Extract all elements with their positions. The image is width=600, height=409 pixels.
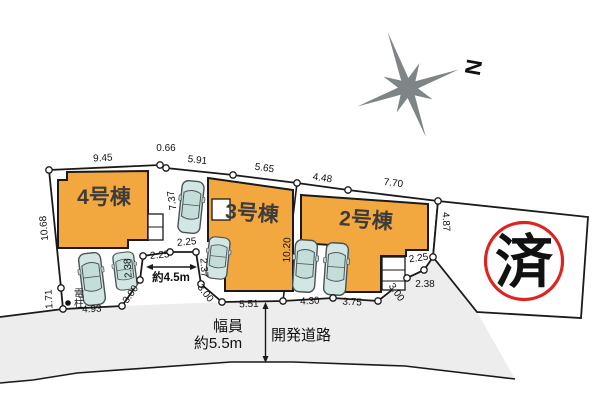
vertex-dot <box>330 295 336 301</box>
dim-430: 4.30 <box>300 295 320 307</box>
vertex-dot <box>163 165 169 171</box>
vertex-dot <box>430 254 436 260</box>
dim-375: 3.75 <box>342 297 362 309</box>
sold-stamp: 済 <box>486 223 563 300</box>
road-width-caption-2: 約5.5m <box>194 335 242 352</box>
site-plan: 4号棟 3号棟 2号棟 電柱 <box>0 0 600 409</box>
road-name-label: 開発道路 <box>271 327 331 344</box>
building-2-label: 2号棟 <box>338 206 394 234</box>
dim-225-top: 2.25 <box>177 236 198 249</box>
vertex-dot <box>58 285 64 291</box>
dim-770: 7.70 <box>383 177 404 190</box>
building-4-shape <box>58 171 148 248</box>
utility-pole-dot <box>65 300 71 306</box>
dim-487: 4.87 <box>439 212 451 233</box>
vertex-dot <box>435 198 441 204</box>
sold-stamp-label: 済 <box>495 230 554 295</box>
compass-north-label: N <box>460 57 487 77</box>
driveway-width-label: 約4.5m <box>152 270 190 284</box>
dim-225-left: 2.25 <box>150 249 171 262</box>
site-plan-canvas: 4号棟 3号棟 2号棟 電柱 <box>0 0 600 409</box>
dim-237: 2.37 <box>197 258 209 279</box>
dim-551: 5.51 <box>239 299 259 311</box>
vertex-dot <box>46 167 52 173</box>
vertex-dot <box>421 267 427 273</box>
dim-493: 4.93 <box>82 303 102 315</box>
vertex-dot <box>119 303 125 309</box>
vertex-dot <box>294 180 300 186</box>
car <box>321 242 351 296</box>
vertex-dot <box>193 249 199 255</box>
car <box>290 239 320 293</box>
vertex-dot <box>375 298 381 304</box>
driveway-width-arrow <box>146 264 197 270</box>
vertex-dot <box>60 306 66 312</box>
dim-591: 5.91 <box>187 154 208 167</box>
vertex-dot <box>219 299 225 305</box>
vertex-dot <box>345 187 351 193</box>
dim-171: 1.71 <box>43 289 55 309</box>
vertex-dot <box>280 298 286 304</box>
vertex-dot <box>140 253 146 259</box>
dim-448: 4.48 <box>312 172 333 186</box>
compass-star <box>357 32 458 137</box>
vertex-dot <box>404 275 410 281</box>
compass-rose: N <box>357 32 487 137</box>
dim-1068: 10.68 <box>38 215 51 241</box>
dim-238-left: 2.38 <box>122 258 134 279</box>
building-4-label: 4号棟 <box>77 185 132 209</box>
dim-066: 0.66 <box>156 143 176 154</box>
vertex-dot <box>230 172 236 178</box>
road-width-caption-1: 幅員 <box>213 318 243 335</box>
vertex-dot <box>137 277 143 283</box>
dim-945: 9.45 <box>93 152 113 164</box>
dim-238-right: 2.38 <box>415 279 435 290</box>
dim-1020: 10.20 <box>282 237 294 263</box>
building-3-label: 3号棟 <box>224 199 280 227</box>
dim-565: 5.65 <box>254 162 275 176</box>
